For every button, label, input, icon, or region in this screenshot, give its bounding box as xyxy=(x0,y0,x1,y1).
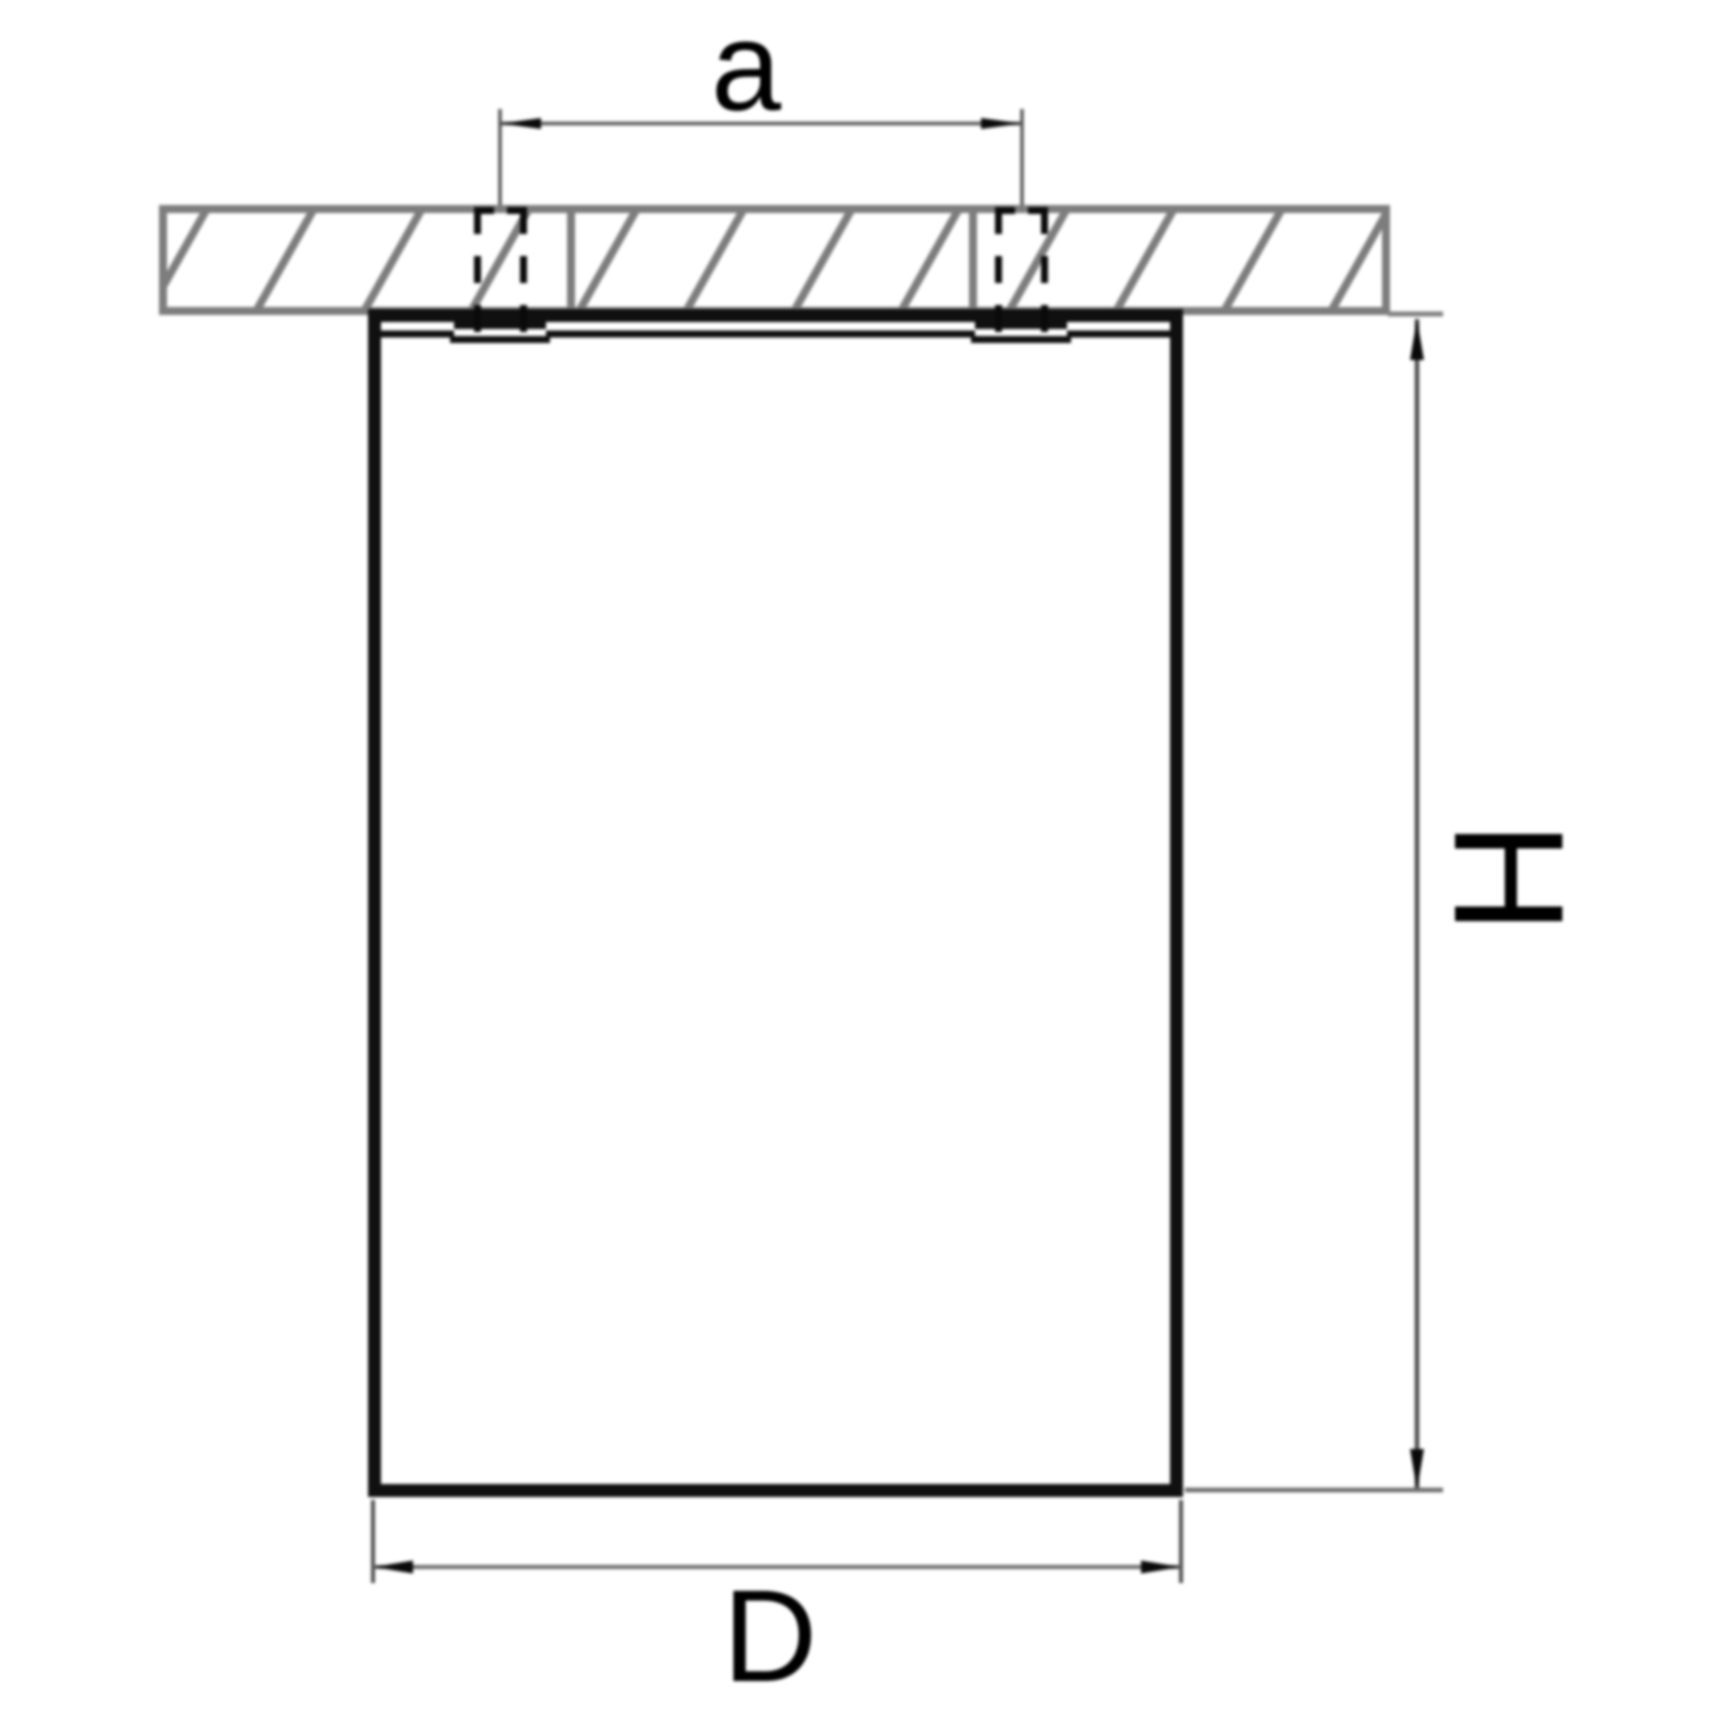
svg-text:a: a xyxy=(711,0,782,137)
svg-text:H: H xyxy=(1421,821,1595,934)
svg-text:D: D xyxy=(723,1562,818,1709)
